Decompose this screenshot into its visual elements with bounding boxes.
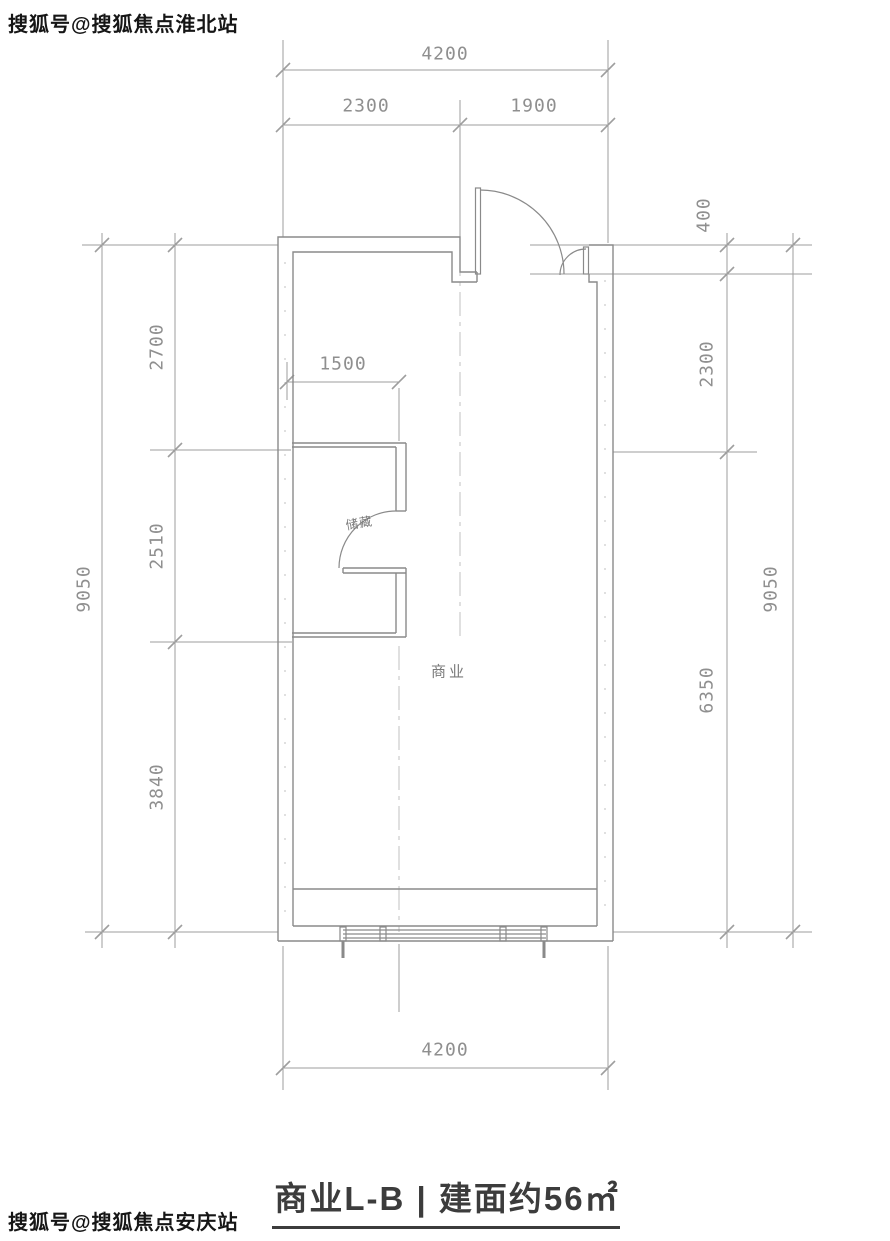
dim-bottom-total: 4200 [421,1040,468,1061]
dim-right-seg1: 400 [694,197,715,233]
unit-walls [278,237,613,941]
storefront-window [340,927,547,958]
dim-top-right: 1900 [510,96,557,117]
entry-door [476,188,589,275]
dim-top-left: 2300 [342,96,389,117]
dim-right-seg2: 2300 [697,340,718,387]
floor-plan-page: { "watermark_top": { "text": "搜狐号@搜狐焦点淮北… [0,0,890,1241]
dim-left-seg1: 2700 [147,323,168,370]
dim-right-overall: 9050 [761,565,782,612]
caption-underline [272,1226,620,1229]
watermark-bottom: 搜狐号@搜狐焦点安庆站 [8,1206,239,1235]
room-label-main: 商业 [431,661,467,682]
watermark-top: 搜狐号@搜狐焦点淮北站 [8,8,239,37]
dim-right-seg3: 6350 [697,666,718,713]
storage-room-walls [292,443,406,637]
plan-caption: 商业L-B | 建面约56㎡ [274,1172,619,1220]
dim-top-total: 4200 [421,44,468,65]
dim-left-overall: 9050 [74,565,95,612]
dim-left-seg2: 2510 [147,522,168,569]
dim-left-seg3: 3840 [147,763,168,810]
dim-storage-width: 1500 [319,354,366,375]
